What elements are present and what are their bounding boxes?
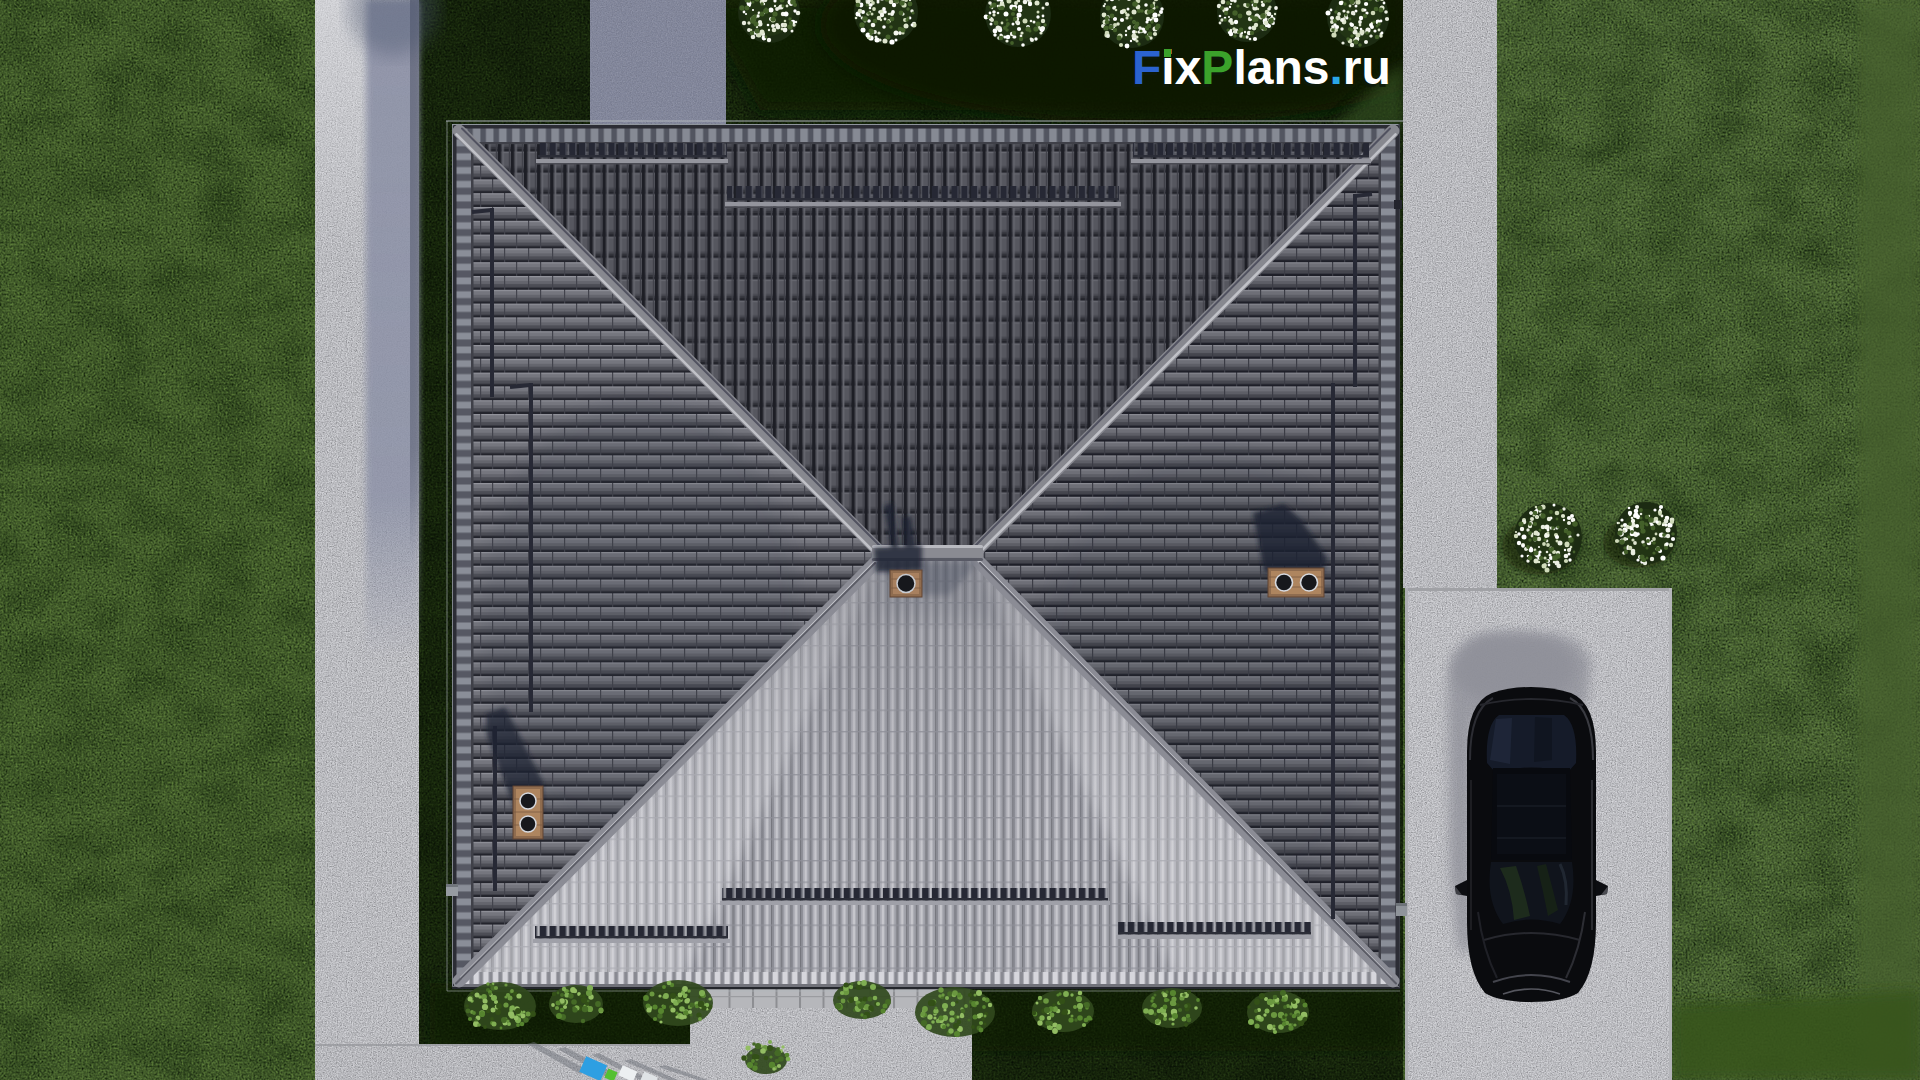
- svg-text:FixPlans.ru: FixPlans.ru: [1132, 41, 1391, 94]
